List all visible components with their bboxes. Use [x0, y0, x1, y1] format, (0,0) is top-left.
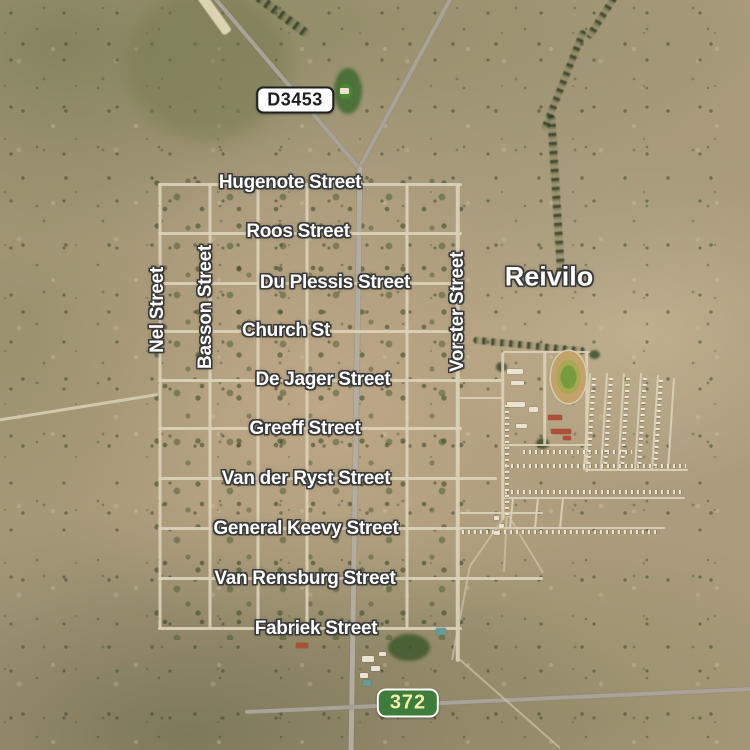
street-label: Roos Street: [246, 221, 349, 243]
street-label: Van der Ryst Street: [222, 468, 391, 490]
street-label: Church St: [242, 320, 330, 342]
street-label: Fabriek Street: [255, 618, 378, 640]
street-label: General Keevy Street: [213, 518, 398, 540]
street-label: Van Rensburg Street: [214, 568, 395, 590]
route-badge-372: 372: [377, 689, 439, 718]
street-label: De Jager Street: [256, 369, 391, 391]
map-canvas[interactable]: Reivilo Hugenote StreetRoos StreetDu Ple…: [0, 0, 750, 750]
street-label: Du Plessis Street: [260, 272, 410, 294]
town-label: Reivilo: [505, 262, 594, 293]
labels-layer: Reivilo Hugenote StreetRoos StreetDu Ple…: [0, 0, 750, 750]
route-badge-d3453: D3453: [256, 87, 334, 114]
street-label-vertical: Vorster Street: [447, 252, 469, 372]
street-label: Hugenote Street: [219, 172, 361, 194]
street-label-vertical: Nel Street: [147, 267, 169, 353]
street-label-vertical: Basson Street: [195, 245, 217, 369]
street-label: Greeff Street: [249, 418, 360, 440]
